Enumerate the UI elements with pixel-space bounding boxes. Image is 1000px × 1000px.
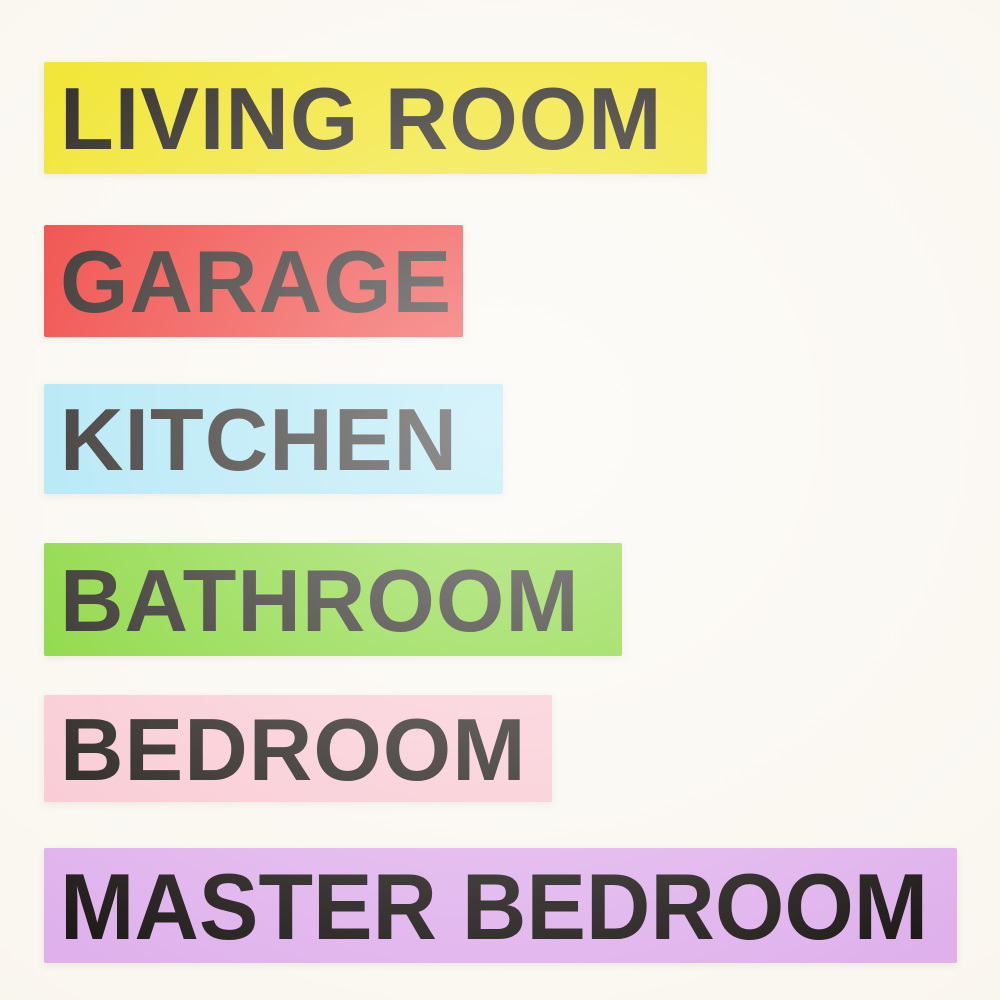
room-label-kitchen: KITCHEN	[44, 384, 503, 494]
room-label-bathroom-text: BATHROOM	[60, 557, 580, 645]
room-label-garage-text: GARAGE	[60, 238, 452, 326]
room-label-bathroom: BATHROOM	[44, 543, 622, 656]
room-label-master-bedroom: MASTER BEDROOM	[44, 848, 957, 963]
room-label-bedroom-text: BEDROOM	[60, 706, 527, 794]
room-label-living-room-text: LIVING ROOM	[60, 75, 663, 163]
room-label-master-bedroom-text: MASTER BEDROOM	[60, 860, 928, 954]
room-label-bedroom: BEDROOM	[44, 695, 552, 802]
room-label-kitchen-text: KITCHEN	[60, 396, 458, 484]
room-label-living-room: LIVING ROOM	[44, 62, 707, 174]
room-label-garage: GARAGE	[44, 225, 463, 337]
room-labels-photo: LIVING ROOM GARAGE KITCHEN BATHROOM BEDR…	[0, 0, 1000, 1000]
